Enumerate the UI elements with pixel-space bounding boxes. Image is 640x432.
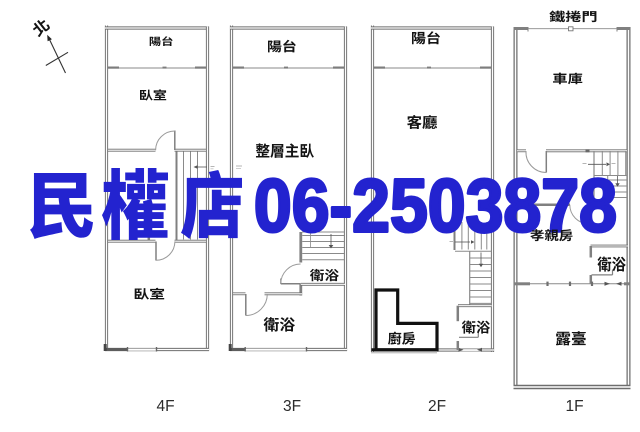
svg-text:3F: 3F bbox=[283, 398, 301, 415]
svg-text:2F: 2F bbox=[428, 398, 446, 415]
svg-text:4F: 4F bbox=[156, 398, 174, 415]
svg-text:1F: 1F bbox=[565, 398, 583, 415]
